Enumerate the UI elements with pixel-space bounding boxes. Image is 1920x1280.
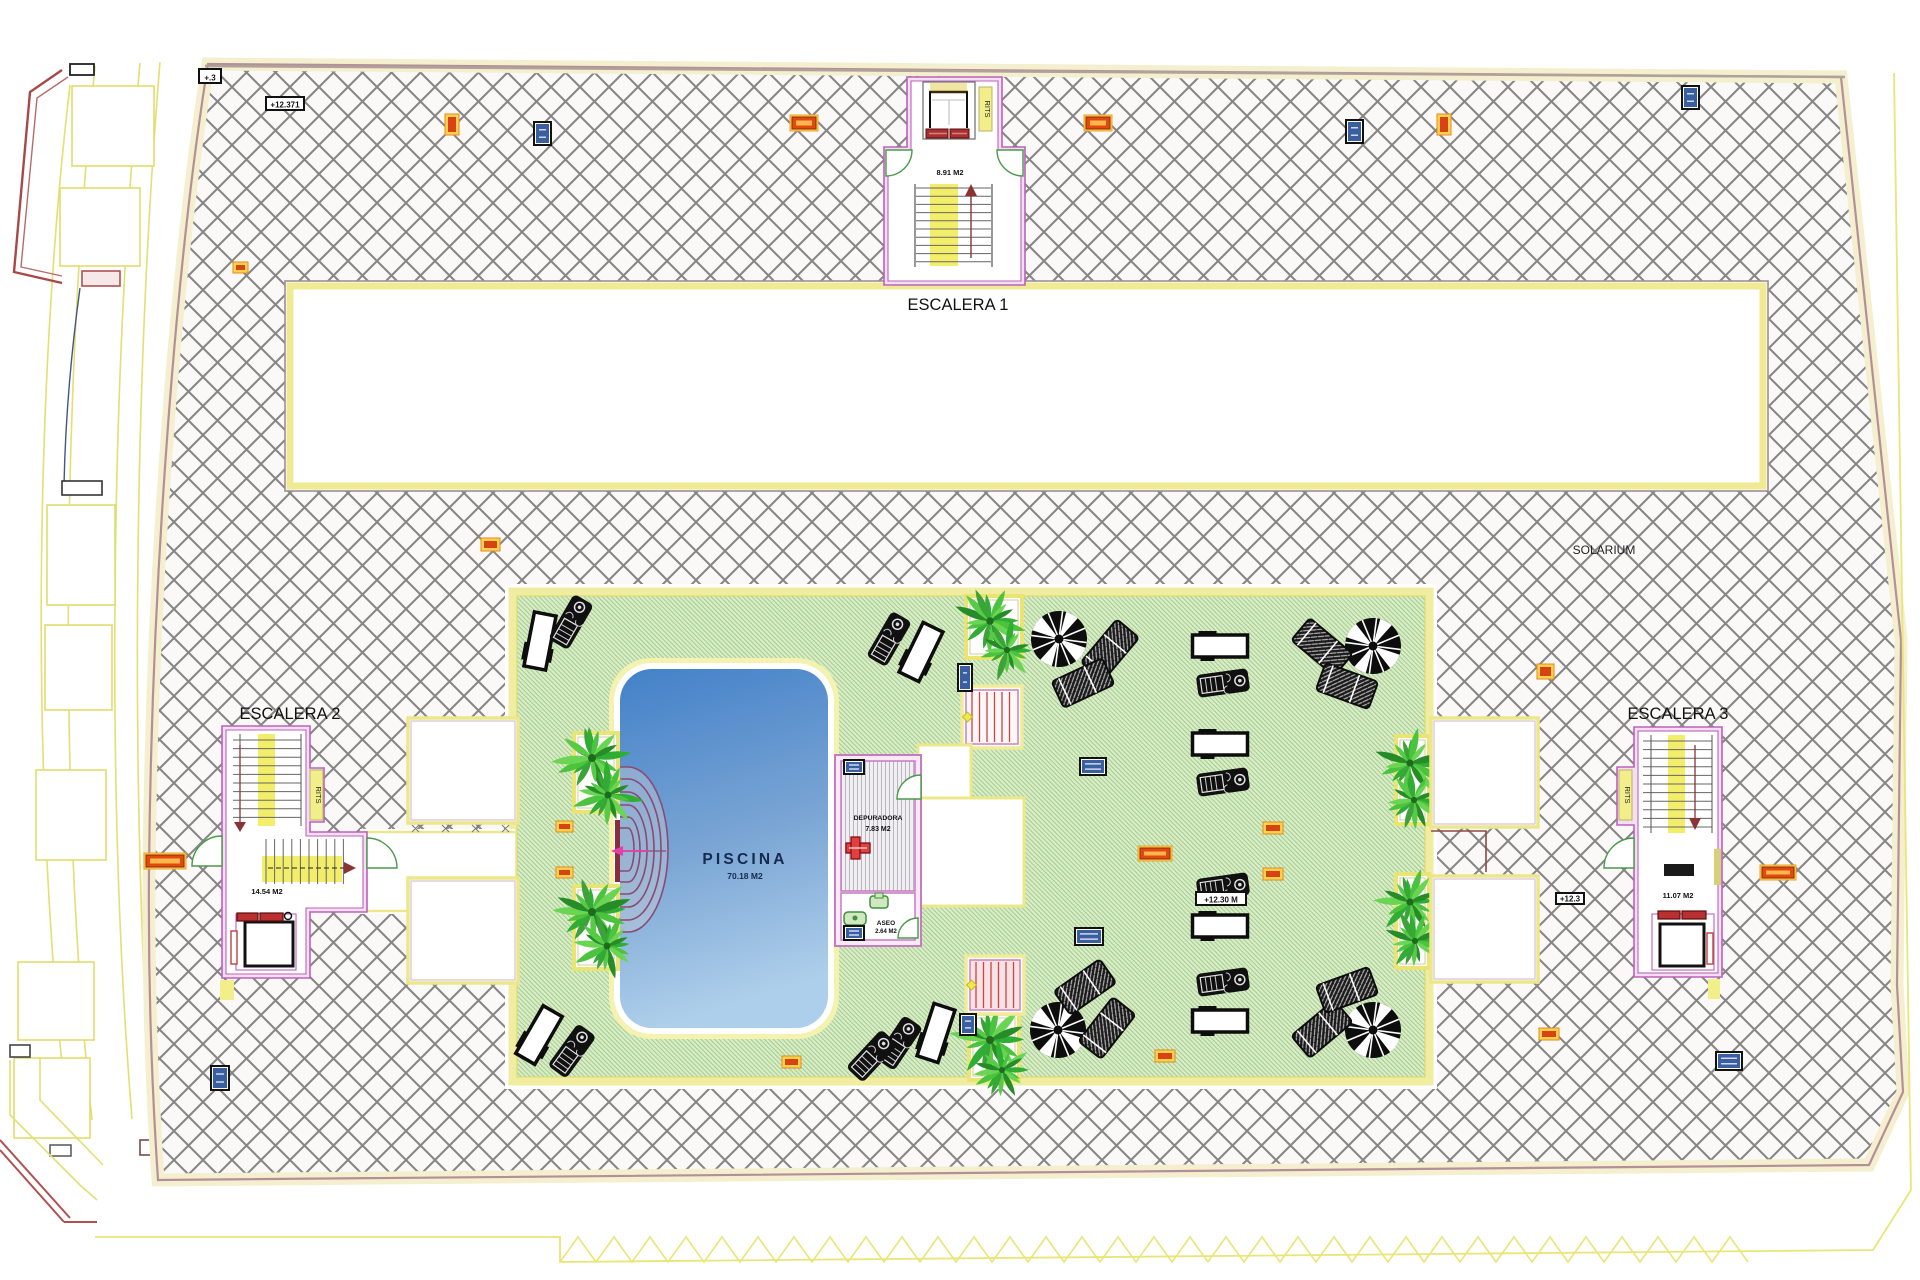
svg-text:ESCALERA 1: ESCALERA 1 [908, 296, 1009, 314]
svg-text:ESCALERA 3: ESCALERA 3 [1628, 705, 1729, 723]
svg-text:RITS: RITS [1623, 786, 1632, 803]
svg-text:+12.3: +12.3 [1560, 895, 1581, 904]
svg-text:SOLARIUM: SOLARIUM [1573, 543, 1636, 557]
svg-text:2.64 M2: 2.64 M2 [875, 929, 897, 935]
svg-text:RITS: RITS [983, 100, 992, 117]
svg-text:+12.371: +12.371 [270, 101, 300, 110]
svg-text:+.3: +.3 [204, 74, 216, 83]
svg-text:PISCINA: PISCINA [702, 851, 787, 868]
svg-text:ESCALERA 2: ESCALERA 2 [240, 705, 341, 723]
svg-text:+12.30 M: +12.30 M [1204, 896, 1238, 905]
svg-text:11.07 M2: 11.07 M2 [1663, 891, 1694, 900]
svg-text:DEPURADORA: DEPURADORA [854, 815, 903, 822]
svg-text:70.18 M2: 70.18 M2 [727, 871, 763, 881]
svg-text:14.54 M2: 14.54 M2 [251, 887, 282, 896]
svg-text:8.91 M2: 8.91 M2 [936, 168, 963, 177]
svg-text:ASEO: ASEO [877, 920, 895, 927]
svg-text:RITS: RITS [314, 786, 323, 803]
svg-text:7.83 M2: 7.83 M2 [865, 826, 890, 833]
